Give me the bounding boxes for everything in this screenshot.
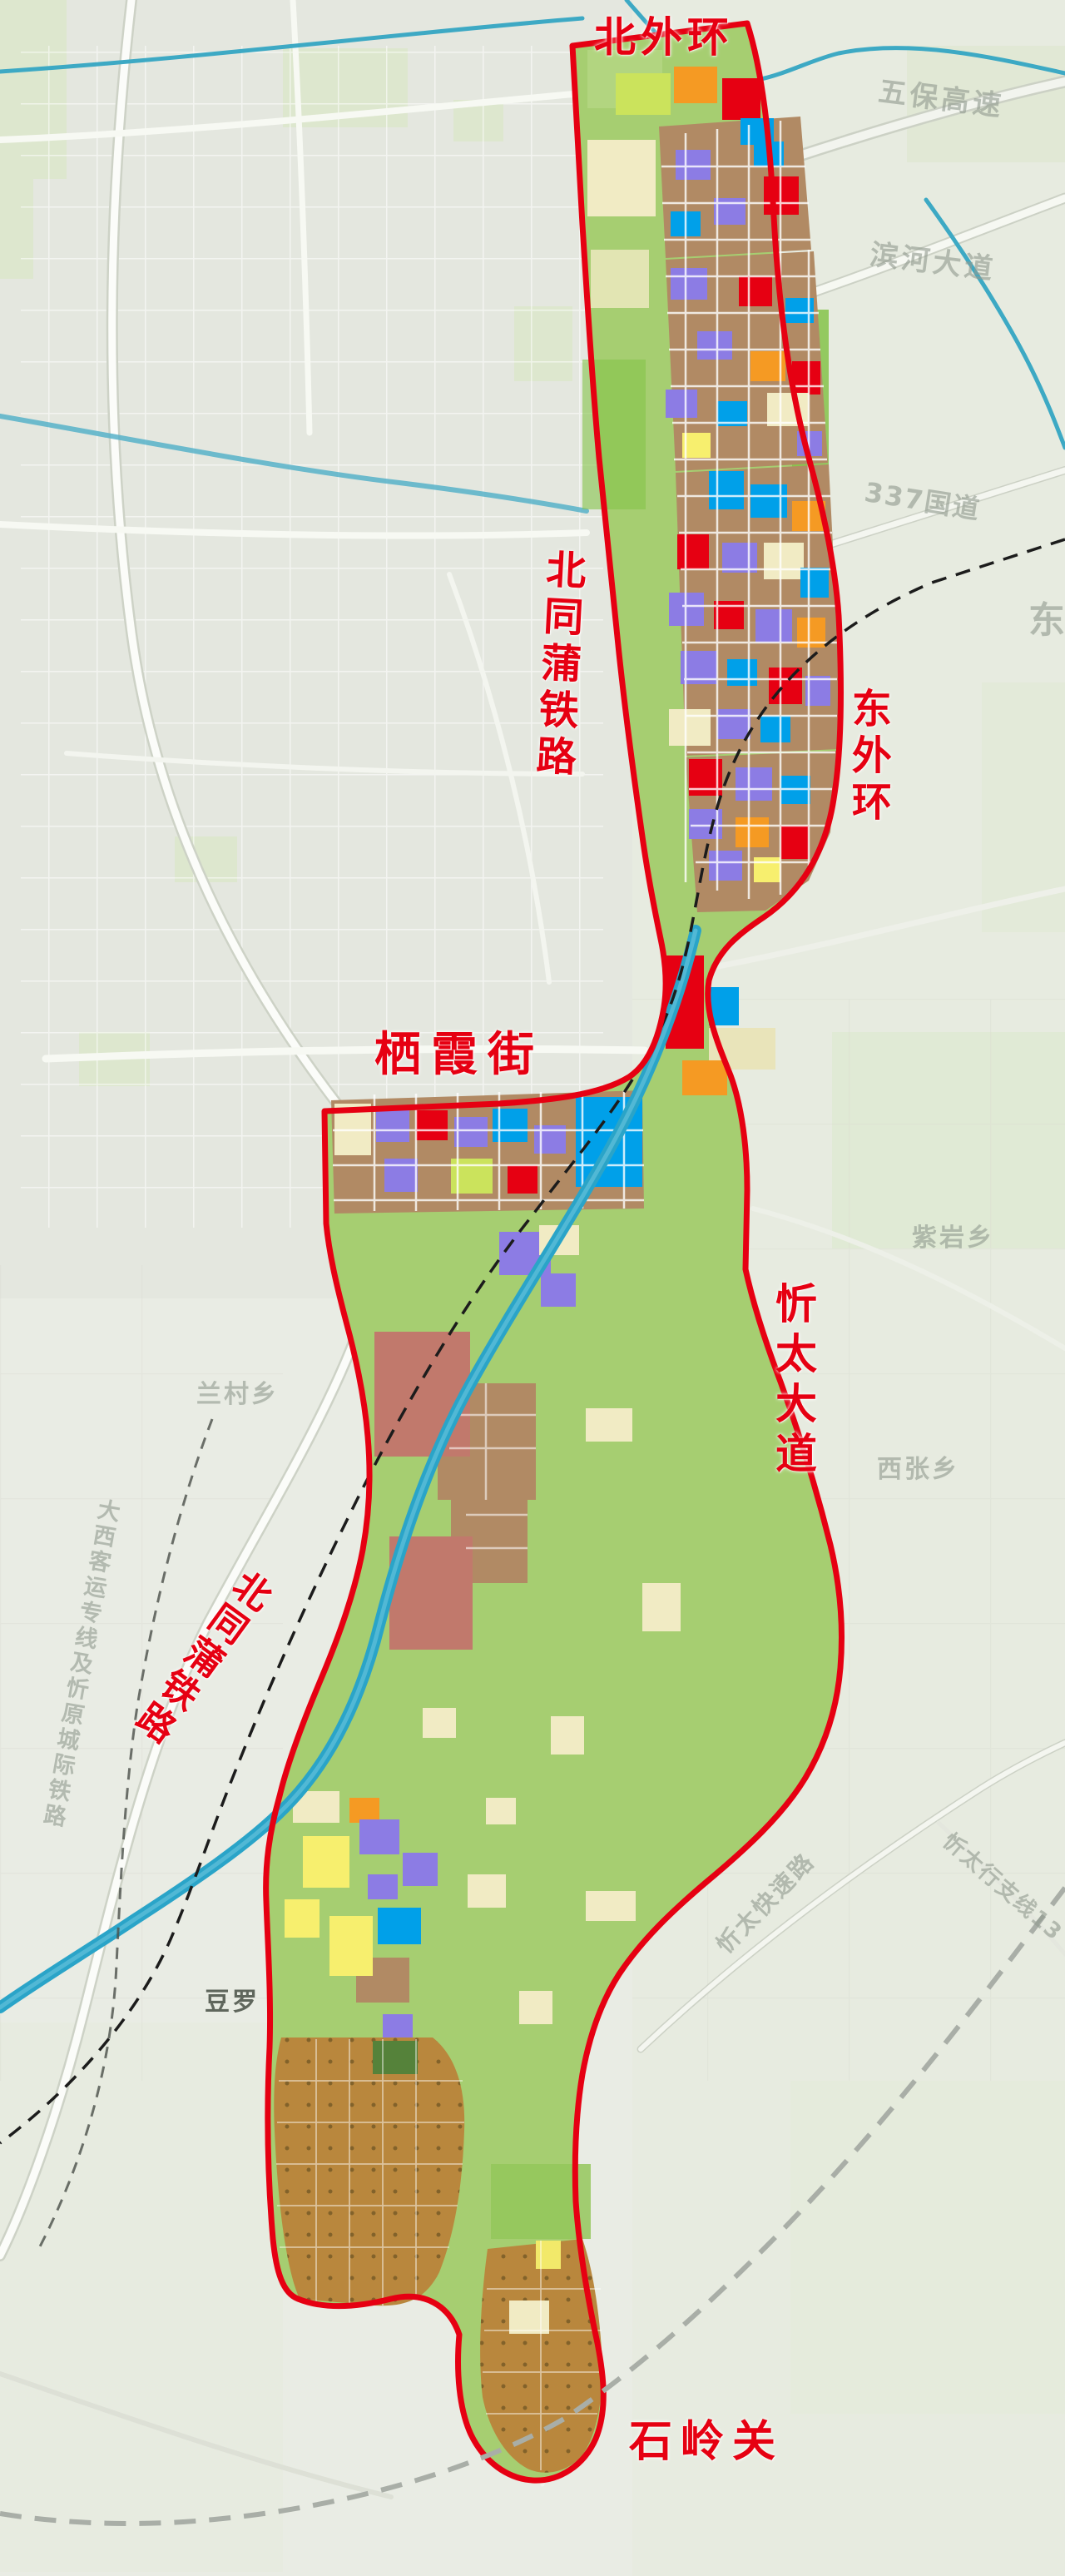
label-xizhang-township: 西张乡 <box>877 1457 959 1483</box>
label-wubao-expressway: 五保高速 <box>877 77 1006 122</box>
label-east-outer-ring: 东外环 <box>845 687 889 827</box>
label-qixia-street: 栖霞街 <box>374 1030 544 1080</box>
label-north-outer-ring: 北外环 <box>594 15 734 60</box>
label-ziyan-township: 紫岩乡 <box>912 1225 994 1252</box>
label-xintai-avenue: 忻太大道 <box>770 1282 815 1482</box>
label-shiling-pass: 石岭关 <box>629 2419 784 2465</box>
label-binhe-avenue: 滨河大道 <box>869 240 998 285</box>
label-daxi-passenger-line: 大西客运专线及忻原城际铁路 <box>38 1496 121 1831</box>
label-g337-national-road: 337国道 <box>863 478 983 524</box>
planning-map: 北外环北同蒲铁路东外环栖霞街忻太大道北同蒲铁路石岭关五保高速滨河大道337国道东… <box>0 0 1065 2576</box>
label-lancun-township: 兰村乡 <box>196 1382 279 1408</box>
label-xintai-branch-13: 忻太行支线13 <box>939 1829 1065 1945</box>
label-douluo: 豆罗 <box>205 1989 260 2016</box>
map-labels: 北外环北同蒲铁路东外环栖霞街忻太大道北同蒲铁路石岭关五保高速滨河大道337国道东… <box>0 0 1065 2576</box>
label-xintai-expressway: 忻太快速路 <box>712 1848 820 1958</box>
label-east-partial: 东 <box>1028 601 1065 641</box>
label-beitongpu-railway-north: 北同蒲铁路 <box>528 548 583 782</box>
label-beitongpu-railway-south: 北同蒲铁路 <box>125 1561 276 1750</box>
